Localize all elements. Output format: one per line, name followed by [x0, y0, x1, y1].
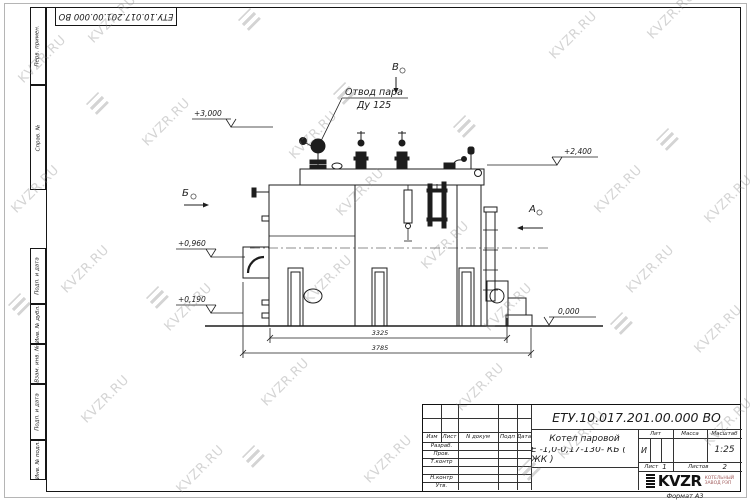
elevation-0960-label: +0,960: [178, 239, 206, 248]
rev-header-podp: Подп: [498, 432, 517, 442]
steam-outlet-valve: [300, 138, 327, 170]
view-v-letter: В: [392, 62, 399, 73]
role-razrab: Разраб.: [423, 442, 458, 450]
product-title-line1: Котел паровой: [531, 431, 638, 447]
elevation-0960: +0,960: [176, 239, 245, 257]
safety-valve-1: [354, 131, 368, 169]
rear-duct: [483, 207, 498, 301]
view-b-letter: Б: [182, 188, 189, 199]
rev-header-ndoc: N докум: [458, 432, 498, 442]
dimension-3325-label: 3325: [372, 329, 389, 337]
kvzr-logo-icon: [646, 473, 655, 488]
role-utv: Утв.: [423, 482, 458, 490]
dimension-3785-label: 3785: [372, 344, 389, 352]
lever-valve: [444, 147, 482, 177]
elevation-0190: +0,190: [176, 295, 243, 313]
lit-value: И: [638, 438, 650, 462]
elevation-0190-label: +0,190: [178, 295, 206, 304]
title-block: ЕТУ.10.017.201.00.000 ВО Изм Лист N доку…: [422, 404, 741, 492]
kvzr-logo-text: KVZR: [658, 472, 702, 490]
manufacturer-logo: KVZR КОТЕЛЬНЫЙ ЗАВОД РЭП: [638, 471, 742, 490]
elevation-3000: +3,000: [192, 109, 273, 127]
role-prov: Пров.: [423, 450, 458, 458]
steam-outlet-label-2: Ду 125: [356, 100, 391, 111]
role-nkontr: Н.контр: [423, 474, 458, 482]
steam-deck: [300, 169, 484, 185]
scale-label: Масштаб: [707, 429, 742, 438]
rev-header-izm: Изм: [423, 432, 441, 442]
product-title-line2: Е -1,0-0,17-130- КБ ( ЖК ): [531, 447, 638, 463]
view-label-b: Б: [182, 188, 209, 208]
role-tkontr: Т.контр: [423, 458, 458, 466]
elevation-3000-label: +3,000: [194, 109, 222, 118]
sheet-label: Лист: [644, 464, 658, 470]
elevation-0000-label: 0,000: [558, 307, 580, 316]
rev-header-data: Дата: [517, 432, 531, 442]
doc-number: ЕТУ.10.017.201.00.000 ВО: [531, 405, 742, 429]
format-label: Формат А3: [630, 492, 740, 500]
kvzr-logo-sub2: ЗАВОД РЭП: [705, 481, 735, 486]
blower-unit: [487, 281, 532, 326]
sheets-label: Листов: [688, 464, 709, 470]
sheets-value: 2: [723, 463, 727, 471]
scale-value: 1:25: [707, 438, 742, 462]
boiler-geometry: [205, 131, 603, 326]
rev-header-list: Лист: [441, 432, 458, 442]
safety-valve-2: [395, 131, 409, 169]
elevation-0000: 0,000: [544, 307, 596, 325]
elevation-2400-label: +2,400: [564, 147, 592, 156]
burner-front: [243, 188, 269, 318]
view-label-a: А: [517, 204, 543, 231]
elevation-2400: +2,400: [487, 147, 598, 165]
role-empty: [423, 466, 458, 474]
lit-label: Лит: [638, 429, 673, 438]
mass-label: Масса: [673, 429, 707, 438]
water-level-indicator: [427, 182, 447, 228]
sheet-value: 1: [662, 463, 666, 471]
manhole: [304, 289, 322, 303]
support-legs: [288, 268, 474, 326]
drawing-sheet: ЕТУ.10.017.201.00.000 ВО Перв. примен. С…: [0, 0, 750, 500]
view-a-letter: А: [528, 204, 536, 215]
water-gauge-glass: [404, 185, 412, 241]
